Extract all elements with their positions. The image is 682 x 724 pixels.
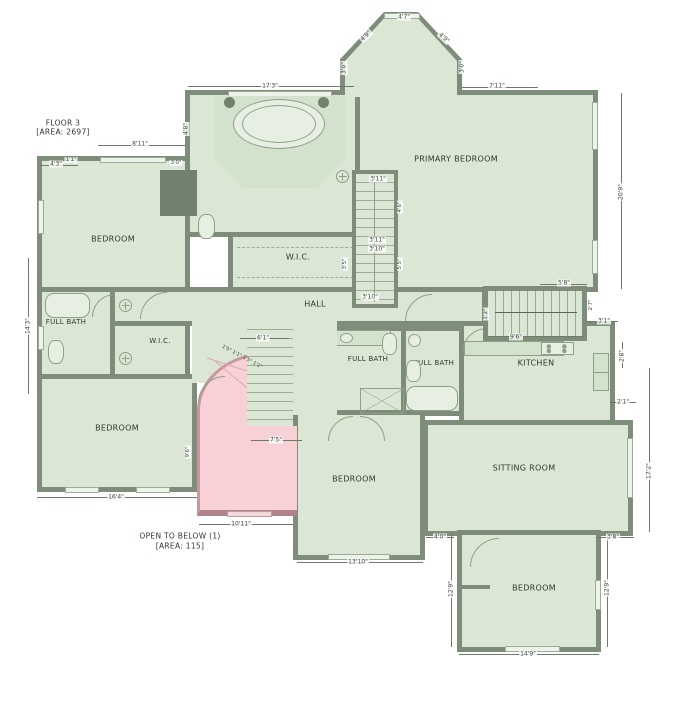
floor-title: FLOOR 3 — [46, 119, 81, 128]
kitchen-cabinet-right — [593, 353, 609, 391]
label-primary-bedroom: PRIMARY BEDROOM — [414, 155, 498, 164]
label-bedroom-top-left: BEDROOM — [91, 235, 135, 244]
dim-bedbr-right: 12'9" — [604, 579, 611, 597]
sink-dot-2 — [318, 97, 329, 108]
dim-open-top: 6'1" — [256, 335, 270, 342]
tub-oval-inner — [242, 105, 316, 143]
dim-bedtl-top: 8'11" — [131, 141, 149, 148]
dim-bay-side-left: 3'0" — [341, 61, 348, 75]
room-wic-center — [228, 232, 360, 292]
bay-window-inner — [345, 17, 457, 97]
window-bathleft-left — [38, 326, 44, 350]
window-bedbr-right — [595, 580, 601, 610]
toilet-bath-c2 — [406, 360, 421, 382]
dim-kstair-top: 5'8" — [557, 280, 571, 287]
dim-kitchen-step-a: 3'1" — [597, 318, 611, 325]
stairs-kitchen — [483, 286, 587, 341]
dim-open-bottom: 10'11" — [230, 521, 252, 528]
chimney — [160, 170, 197, 216]
toilet-left-bath — [48, 340, 64, 364]
dim-bathtop-left: 4'8" — [183, 122, 190, 136]
dim-bedtl-small-b: 3'0" — [169, 160, 182, 166]
room-wic-left — [110, 321, 190, 379]
room-bedroom-lower-left — [37, 374, 197, 492]
dim-stair-right-v2: 5'5" — [397, 257, 403, 270]
dim-stair-mid-a: 3'11" — [368, 237, 386, 244]
dim-line — [489, 336, 584, 337]
window-sitting-right — [627, 438, 633, 498]
sink-dot-1 — [224, 97, 235, 108]
dim-bedll-bottom: 16'4" — [107, 494, 125, 501]
label-wic-left: W.I.C. — [149, 337, 171, 345]
dim-open-left-v: 9'6" — [185, 445, 191, 458]
window-primary-right1 — [592, 102, 598, 150]
stairs-lower — [247, 321, 297, 426]
shower-x — [360, 388, 404, 414]
dim-open-stair-w: 7'5" — [269, 437, 283, 444]
floor-plan: BEDROOM FULL BATH PRIMARY BEDROOM W.I.C.… — [0, 0, 682, 724]
stairs-kitchen-line — [495, 312, 577, 313]
label-full-bath-c1: FULL BATH — [348, 355, 388, 363]
sink-bath-c1 — [340, 333, 353, 343]
dim-kitchen-step-b: 2'1" — [616, 399, 630, 406]
tub-left-bath — [45, 293, 90, 318]
dim-stair-top: 3'11" — [369, 176, 387, 183]
window-bedtl-left — [38, 200, 44, 234]
tub-bath-c2 — [406, 386, 458, 411]
label-sitting-room: SITTING ROOM — [493, 464, 556, 473]
room-bedroom-bottom-center — [293, 410, 425, 560]
dim-stair-mid-b: 3'10" — [368, 246, 386, 253]
sink-bath-c2 — [408, 334, 421, 347]
wic-rail-2 — [237, 277, 353, 278]
dim-stair-bottom: 3'10" — [361, 294, 379, 301]
toilet-bath-c1 — [382, 333, 397, 355]
window-bedtl-top — [100, 157, 166, 163]
window-primary-right2 — [592, 240, 598, 274]
dim-primary-top: 7'11" — [488, 83, 506, 90]
light-fixture-2 — [119, 352, 132, 365]
dim-bedbc-bottom: 13'10" — [347, 559, 369, 566]
label-bedroom-bottom-center: BEDROOM — [332, 475, 376, 484]
open-below-area-label: [AREA: 115] — [156, 542, 204, 551]
dim-sitting-right: 17'2" — [646, 462, 653, 480]
dim-stair-right-v1: 4'6" — [397, 200, 403, 213]
closet-wall-bedbr — [460, 585, 490, 589]
dim-stair-left-v: 3'5" — [342, 257, 348, 270]
dim-bathtop-width: 17'3" — [261, 83, 279, 90]
open-below-title: OPEN TO BELOW (1) — [139, 532, 220, 541]
dim-bay-top: 4'7" — [397, 14, 411, 21]
dim-primary-right: 20'9" — [618, 183, 625, 201]
label-full-bath-left: FULL BATH — [46, 318, 86, 326]
label-wic-center: W.I.C. — [286, 253, 310, 262]
dim-kstair-right-v: 2'7" — [588, 298, 594, 311]
dim-outer-left: 14'3" — [25, 317, 32, 335]
dim-bay-side-right: 3'0" — [459, 60, 466, 74]
label-kitchen: KITCHEN — [518, 359, 555, 368]
light-fixture-3 — [336, 170, 349, 183]
room-sitting — [423, 420, 633, 536]
toilet-top-bath — [198, 214, 215, 239]
dim-kstair-bottom: 9'6" — [509, 334, 523, 341]
kitchen-stove — [541, 342, 574, 355]
dim-sitting-bottom-b: 3'8" — [606, 534, 620, 541]
wic-rail-1 — [237, 247, 353, 248]
label-hall: HALL — [304, 300, 326, 309]
light-fixture-1 — [119, 299, 132, 312]
label-bedroom-lower-left: BEDROOM — [95, 424, 139, 433]
dim-bedbc-right-a: 4'0" — [433, 534, 447, 541]
dim-bedtl-small-a: 1'1" — [64, 157, 77, 163]
corridor — [293, 321, 337, 415]
dim-line — [649, 368, 650, 532]
dim-bedtl-left: 4'3" — [49, 161, 63, 168]
dim-kstair-left-v: 1'2" — [483, 307, 489, 320]
floor-area: [AREA: 2697] — [36, 128, 90, 137]
open-below-window — [227, 511, 272, 517]
window-bedll-bottom1 — [65, 487, 99, 493]
dim-bedbr-bottom: 14'9" — [519, 651, 537, 658]
label-bedroom-bottom-right: BEDROOM — [512, 584, 556, 593]
dim-kitchen-right-v: 2'8" — [619, 349, 626, 363]
window-bedll-bottom2 — [136, 487, 170, 493]
dim-bedbr-left: 12'9" — [448, 580, 455, 598]
